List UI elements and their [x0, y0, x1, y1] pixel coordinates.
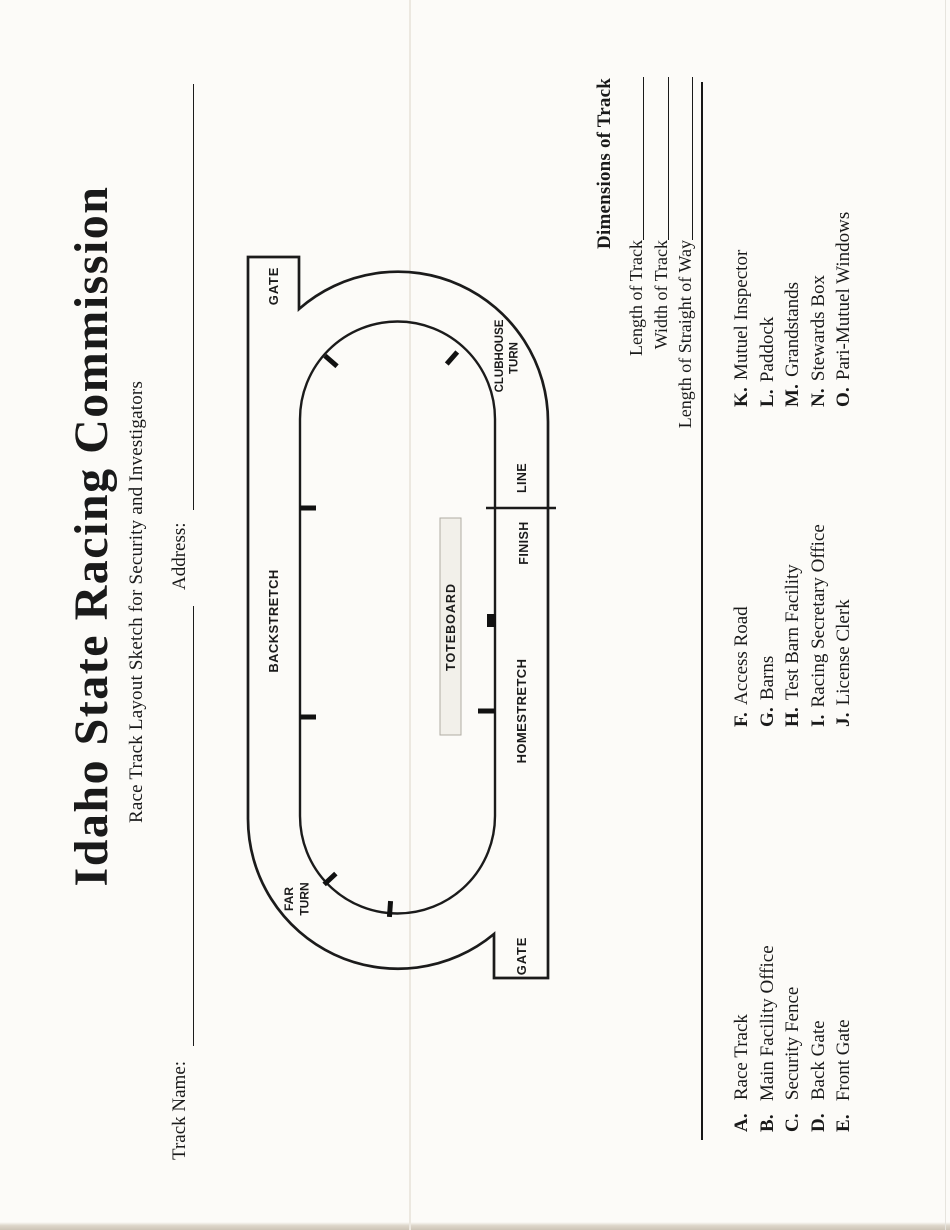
legend-item-m: M.Grandstands — [782, 282, 804, 407]
rotated-landscape-sheet: Idaho State Racing Commission Race Track… — [0, 0, 950, 1230]
legend-key: K. — [731, 387, 752, 407]
legend-item-b: B.Main Facility Office — [757, 945, 779, 1132]
legend-label: Main Facility Office — [757, 945, 778, 1101]
legend-item-l: L.Paddock — [757, 317, 779, 407]
legend-label: Paddock — [757, 317, 778, 382]
legend-label: Test Barn Facility — [782, 564, 803, 700]
dimension-label: Length of Straight of Way — [674, 240, 696, 428]
dimension-blank-line — [647, 77, 669, 240]
finish-line-label: LINE — [515, 463, 529, 493]
legend-item-i: I.Racing Secretary Office — [808, 524, 830, 727]
legend-item-f: F.Access Road — [731, 606, 753, 727]
clubhouse-turn-label-1: CLUBHOUSE — [494, 319, 506, 392]
pole-marker — [323, 354, 338, 368]
legend-divider — [701, 82, 703, 1140]
legend-label: Pari-Mutuel Windows — [833, 212, 854, 380]
legend-item-n: N.Stewards Box — [808, 275, 830, 407]
toteboard-label: TOTEBOARD — [444, 583, 458, 671]
legend-key: F. — [731, 712, 752, 727]
legend-key: M. — [782, 384, 803, 407]
backstretch-label: BACKSTRETCH — [266, 569, 281, 672]
pole-marker — [487, 614, 496, 627]
legend-item-e: E.Front Gate — [833, 1019, 855, 1132]
legend-key: E. — [833, 1114, 854, 1132]
pole-marker — [300, 715, 316, 720]
pole-marker — [445, 350, 459, 365]
clubhouse-turn-label-2: TURN — [509, 342, 521, 374]
legend-label: Stewards Box — [808, 275, 829, 381]
legend-item-a: A.Race Track — [731, 1014, 753, 1132]
track-inner-rail — [300, 321, 495, 913]
legend-key: C. — [782, 1113, 803, 1132]
dimension-row: Width of Track — [647, 77, 672, 349]
legend-key: O. — [833, 387, 854, 407]
gate-bottom-label: GATE — [514, 937, 529, 975]
legend-item-h: H.Test Barn Facility — [782, 564, 804, 727]
legend-key: N. — [808, 388, 829, 407]
legend-item-g: G.Barns — [757, 656, 779, 727]
far-turn-label-2: TURN — [298, 882, 312, 915]
legend-key: J. — [833, 712, 854, 727]
legend-item-o: O.Pari-Mutuel Windows — [833, 212, 855, 407]
finish-label: FINISH — [517, 521, 531, 564]
legend-label: Mutuel Inspector — [731, 250, 752, 380]
legend-label: Access Road — [731, 606, 752, 705]
dimension-label: Width of Track — [650, 240, 672, 349]
dimension-row: Length of Straight of Way — [671, 77, 696, 428]
legend-label: Back Gate — [808, 1020, 829, 1100]
legend-key: H. — [782, 707, 803, 727]
legend-item-k: K.Mutuel Inspector — [731, 250, 753, 407]
homestretch-label: HOMESTRETCH — [514, 659, 529, 764]
legend-item-d: D.Back Gate — [808, 1020, 830, 1132]
dimension-row: Length of Track — [622, 77, 647, 356]
dimension-label: Length of Track — [625, 240, 647, 356]
scanned-form-page: { "page": { "title": "Idaho State Racing… — [0, 0, 950, 1230]
legend-key: G. — [757, 707, 778, 727]
legend-key: A. — [731, 1113, 752, 1132]
gate-top-label: GATE — [266, 267, 281, 305]
pole-marker — [478, 709, 495, 714]
legend-label: Racing Secretary Office — [808, 524, 829, 707]
legend-label: Security Fence — [782, 987, 803, 1100]
legend-key: L. — [757, 389, 778, 407]
legend-key: B. — [757, 1114, 778, 1132]
legend-label: Front Gate — [833, 1019, 854, 1101]
far-turn-label-1: FAR — [282, 887, 296, 911]
pole-marker — [322, 872, 337, 887]
legend-key: I. — [808, 714, 829, 727]
legend-item-c: C.Security Fence — [782, 987, 804, 1132]
legend-key: D. — [808, 1113, 829, 1132]
dimension-blank-line — [671, 77, 693, 240]
legend-label: License Clerk — [833, 599, 854, 705]
legend-label: Grandstands — [782, 282, 803, 377]
legend-label: Barns — [757, 656, 778, 700]
legend-label: Race Track — [731, 1014, 752, 1100]
dimension-blank-line — [622, 77, 644, 240]
pole-marker — [387, 901, 393, 917]
legend-item-j: J.License Clerk — [833, 599, 855, 727]
dimensions-heading: Dimensions of Track — [594, 78, 616, 249]
pole-marker — [300, 506, 316, 511]
